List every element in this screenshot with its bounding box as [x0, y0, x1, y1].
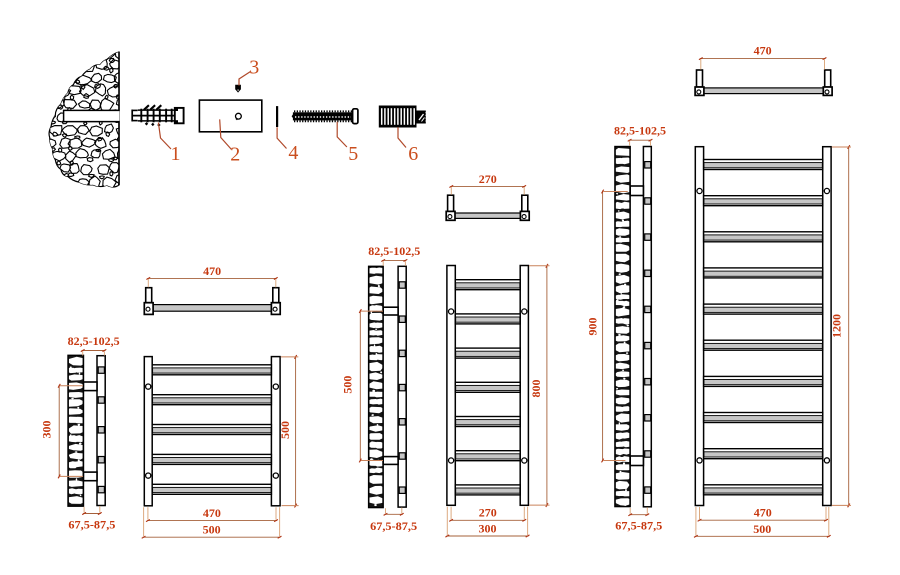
svg-text:470: 470 [203, 264, 221, 278]
svg-text:82,5-102,5: 82,5-102,5 [614, 124, 666, 138]
svg-text:800: 800 [529, 380, 543, 398]
svg-text:67,5-87,5: 67,5-87,5 [615, 519, 662, 533]
svg-text:4: 4 [288, 142, 298, 164]
svg-text:300: 300 [40, 421, 54, 439]
svg-text:67,5-87,5: 67,5-87,5 [68, 517, 115, 531]
svg-text:1200: 1200 [830, 314, 844, 338]
svg-text:2: 2 [230, 143, 240, 165]
svg-text:270: 270 [479, 172, 497, 186]
svg-text:82,5-102,5: 82,5-102,5 [368, 244, 420, 258]
svg-text:470: 470 [754, 505, 772, 519]
svg-text:900: 900 [586, 318, 600, 336]
svg-text:500: 500 [203, 522, 221, 536]
svg-text:500: 500 [340, 376, 354, 394]
svg-text:5: 5 [348, 143, 358, 165]
svg-text:470: 470 [754, 44, 772, 58]
svg-text:67,5-87,5: 67,5-87,5 [370, 519, 417, 533]
svg-text:6: 6 [408, 143, 418, 165]
svg-text:500: 500 [753, 522, 771, 536]
svg-text:500: 500 [278, 421, 292, 439]
svg-text:470: 470 [203, 506, 221, 520]
svg-text:1: 1 [171, 143, 181, 165]
svg-text:3: 3 [249, 57, 259, 79]
svg-text:300: 300 [479, 522, 497, 536]
svg-text:270: 270 [479, 506, 497, 520]
svg-text:82,5-102,5: 82,5-102,5 [68, 334, 120, 348]
